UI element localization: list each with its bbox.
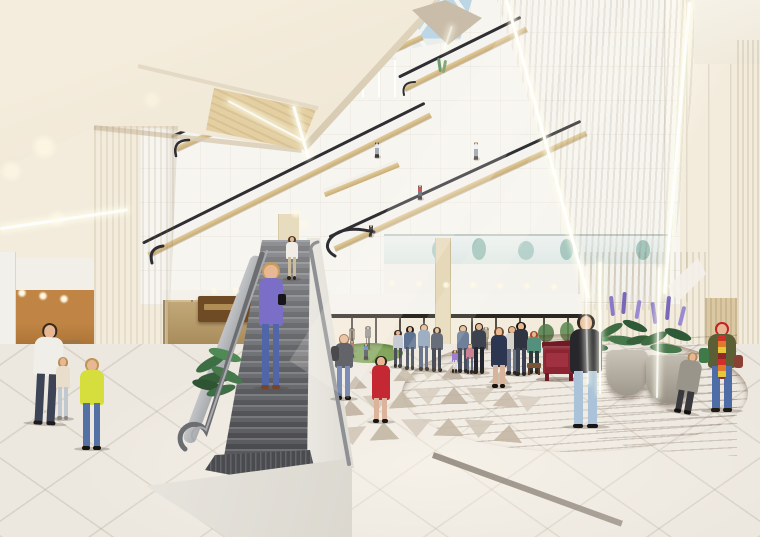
led-strip [505,0,590,298]
led-strip [663,2,690,294]
led-strip [292,106,310,159]
led-strip [584,266,589,384]
led-strips [0,0,760,537]
led-strip [0,209,128,230]
mall-atrium-rendering [0,0,760,537]
led-strip [599,262,602,394]
led-strip [656,268,660,398]
led-strip [443,26,453,51]
